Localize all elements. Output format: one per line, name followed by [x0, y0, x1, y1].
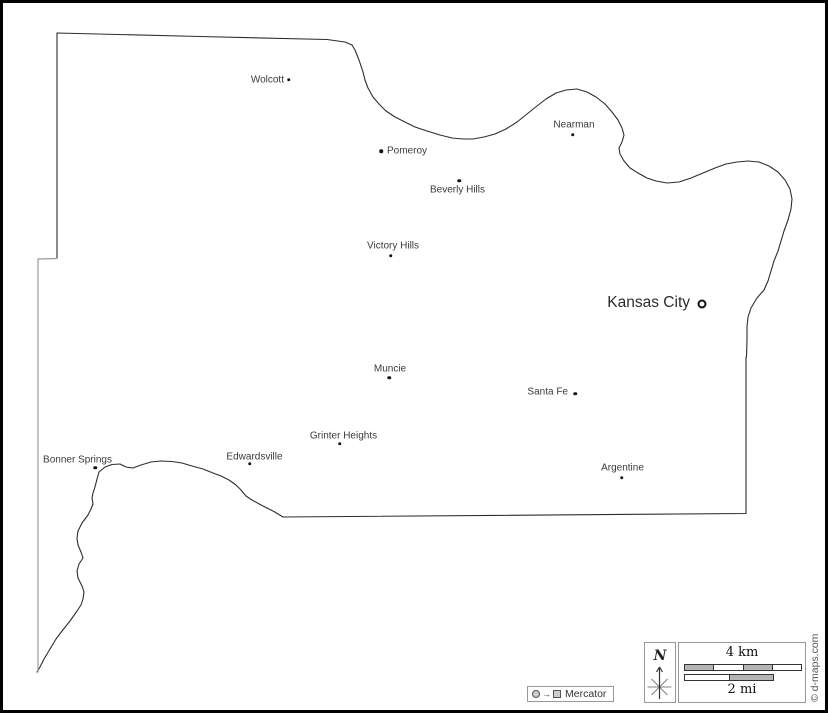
scale-segment	[743, 665, 772, 670]
compass-north-letter: N	[653, 648, 668, 664]
city-dot-wolcott	[287, 78, 291, 82]
city-dot-nearman	[571, 133, 575, 137]
county-border-dark	[57, 33, 746, 517]
scale-segment	[685, 675, 729, 680]
projection-name: Mercator	[565, 688, 606, 700]
city-label-grinter-heights: Grinter Heights	[310, 430, 377, 441]
city-label-beverly-hills: Beverly Hills	[430, 185, 485, 196]
scale-segment	[729, 675, 774, 680]
city-dot-victory-hills	[389, 254, 393, 258]
compass-box: N	[644, 642, 676, 703]
city-label-argentine: Argentine	[601, 463, 644, 474]
city-label-nearman: Nearman	[553, 120, 594, 131]
scale-box: 4 km 2 mi	[678, 642, 806, 703]
city-dot-beverly-hills	[457, 179, 461, 183]
city-dot-edwardsville	[248, 462, 252, 466]
scale-segment	[772, 665, 801, 670]
city-label-victory-hills: Victory Hills	[367, 240, 419, 251]
city-dot-grinter-heights	[338, 442, 342, 446]
projection-legend: → Mercator	[527, 686, 614, 702]
kansas-river-border	[37, 461, 283, 672]
city-dot-pomeroy	[379, 149, 383, 153]
city-label-santa-fe: Santa Fe	[527, 387, 568, 398]
scale-bar-mi	[684, 674, 774, 681]
city-label-edwardsville: Edwardsville	[226, 451, 282, 462]
city-dot-muncie	[387, 376, 391, 380]
county-border-light	[38, 259, 57, 673]
city-label-kansas-city: Kansas City	[607, 294, 690, 312]
arrow-right-icon: →	[542, 690, 551, 699]
kansas-city-marker-icon	[697, 299, 706, 308]
globe-circle-icon	[532, 690, 540, 698]
projected-square-icon	[553, 690, 561, 698]
scale-mi-label: 2 mi	[679, 682, 805, 697]
city-label-pomeroy: Pomeroy	[387, 145, 427, 156]
scale-bar-km	[684, 664, 802, 671]
city-label-wolcott: Wolcott	[251, 75, 284, 86]
compass-rose-icon: N	[645, 643, 675, 702]
map-page: Wolcott Pomeroy Nearman Beverly Hills Vi…	[0, 0, 828, 713]
scale-segment	[685, 665, 713, 670]
city-dot-argentine	[620, 476, 624, 480]
scale-segment	[713, 665, 742, 670]
city-label-muncie: Muncie	[374, 364, 406, 375]
city-dot-santa-fe	[573, 392, 577, 396]
missouri-river-border	[352, 45, 792, 357]
city-label-bonner-springs: Bonner Springs	[43, 454, 112, 465]
scale-km-label: 4 km	[679, 645, 805, 660]
dmaps-credit: © d-maps.com	[809, 634, 821, 702]
county-map-canvas	[0, 0, 828, 713]
city-dot-bonner-springs	[93, 466, 97, 470]
